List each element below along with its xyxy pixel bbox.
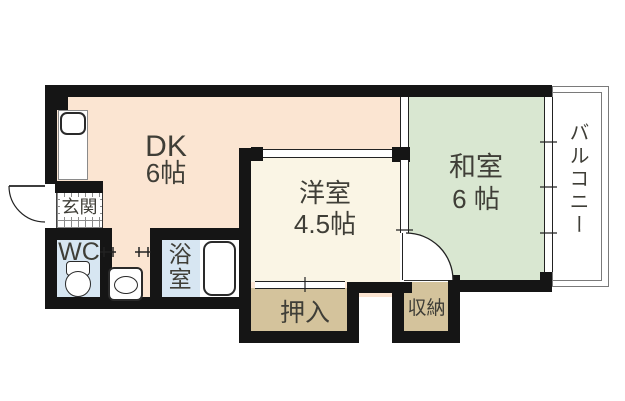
wall-left-upper <box>45 85 57 184</box>
bathtub <box>203 241 236 296</box>
western-japanese-divider <box>400 160 409 233</box>
wall-japanese-bottom <box>448 280 552 292</box>
wall-entrance-top <box>55 181 103 193</box>
dk-size-label: 6帖 <box>126 160 206 187</box>
wall-bathroom-top <box>150 228 251 240</box>
wall-storage-bottom <box>392 331 460 343</box>
wall-bottom-main <box>45 297 251 309</box>
wall-top <box>45 85 552 97</box>
closet-label: 押入 <box>260 300 350 326</box>
balcony-window <box>544 97 553 272</box>
wall-closet-bottom <box>239 331 359 343</box>
kitchen-sink <box>60 112 86 135</box>
wall-western-window-left-block <box>251 147 263 161</box>
closet-opening-line <box>255 281 345 289</box>
balcony-label: バルコニー <box>566 122 587 262</box>
japanese-room-size-label: 6 帖 <box>430 186 522 213</box>
washbasin-bowl <box>114 276 138 294</box>
storage-label: 収納 <box>403 299 450 319</box>
wall-bathroom-left <box>150 228 162 309</box>
japanese-room-label: 和室 <box>430 153 522 181</box>
entrance-label: 玄関 <box>56 198 103 217</box>
floorplan: DK 6帖 洋室 4.5帖 和室 6 帖 バルコニー 玄関 WC 浴室 押入 収… <box>0 0 625 401</box>
japanese-door-leaf <box>402 233 410 280</box>
wc-label: WC <box>57 239 101 265</box>
entrance-door-arc <box>9 186 45 222</box>
bathroom-label: 浴室 <box>166 242 190 298</box>
dk-japanese-divider <box>400 97 409 147</box>
wall-kitchen-notch <box>57 97 68 110</box>
western-room-top-window <box>263 149 392 158</box>
toilet-bowl <box>65 271 91 297</box>
western-room-size-label: 4.5帖 <box>284 211 366 238</box>
storage-opening-line <box>404 280 448 281</box>
wall-western-left <box>239 148 251 343</box>
wall-balcony-window-bottom-block <box>540 272 552 287</box>
western-room-label: 洋室 <box>286 180 364 207</box>
